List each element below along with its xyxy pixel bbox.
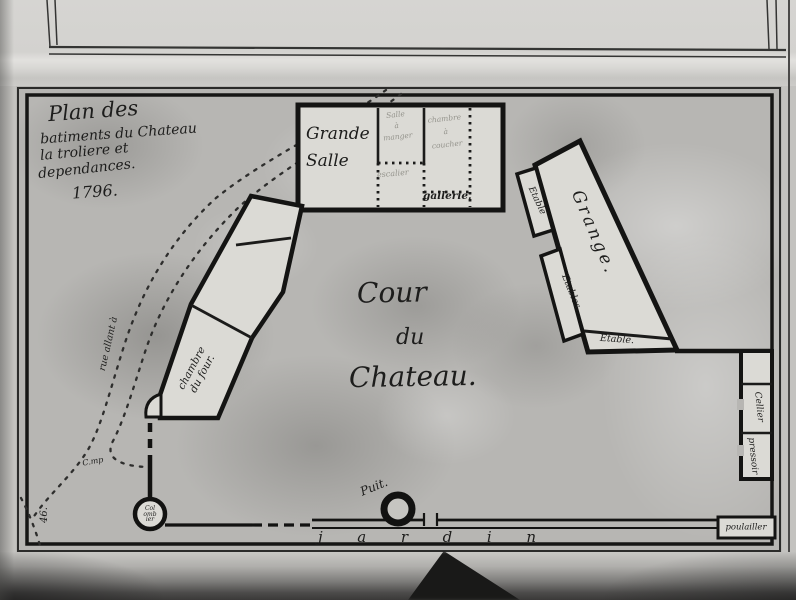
door-gap bbox=[737, 445, 744, 456]
colombier-walls bbox=[135, 423, 312, 529]
photo-left-edge bbox=[0, 0, 14, 600]
chateau-label: Chateau. bbox=[349, 361, 477, 393]
plate-number: 46. bbox=[40, 507, 51, 523]
poulailler-label: poulailler bbox=[725, 524, 766, 533]
colombier-label: Col omb ier bbox=[143, 506, 156, 523]
cellier-label: Cellier bbox=[752, 391, 765, 422]
gallerie-label: gallerie. bbox=[423, 191, 472, 202]
archival-photo: Plan des batiments du Chateau la trolier… bbox=[0, 0, 796, 600]
du-label: du bbox=[396, 326, 424, 349]
cour-label: Cour bbox=[357, 277, 427, 308]
jardin-wall bbox=[312, 513, 770, 528]
left-wing-building bbox=[146, 196, 302, 418]
well-circle bbox=[384, 495, 412, 523]
grange-building bbox=[517, 141, 772, 352]
grande-salle-label: Grande Salle bbox=[306, 121, 370, 175]
jardin-label: j a r d i n bbox=[318, 530, 536, 546]
door-gap bbox=[737, 399, 744, 410]
chambre-a-coucher-label: chambre à coucher bbox=[427, 110, 464, 152]
title-year: 1796. bbox=[71, 182, 118, 202]
salle-a-manger-label: Salle à manger bbox=[380, 108, 413, 144]
photo-bottom-shadow bbox=[0, 552, 796, 600]
oven-tower bbox=[146, 394, 161, 417]
